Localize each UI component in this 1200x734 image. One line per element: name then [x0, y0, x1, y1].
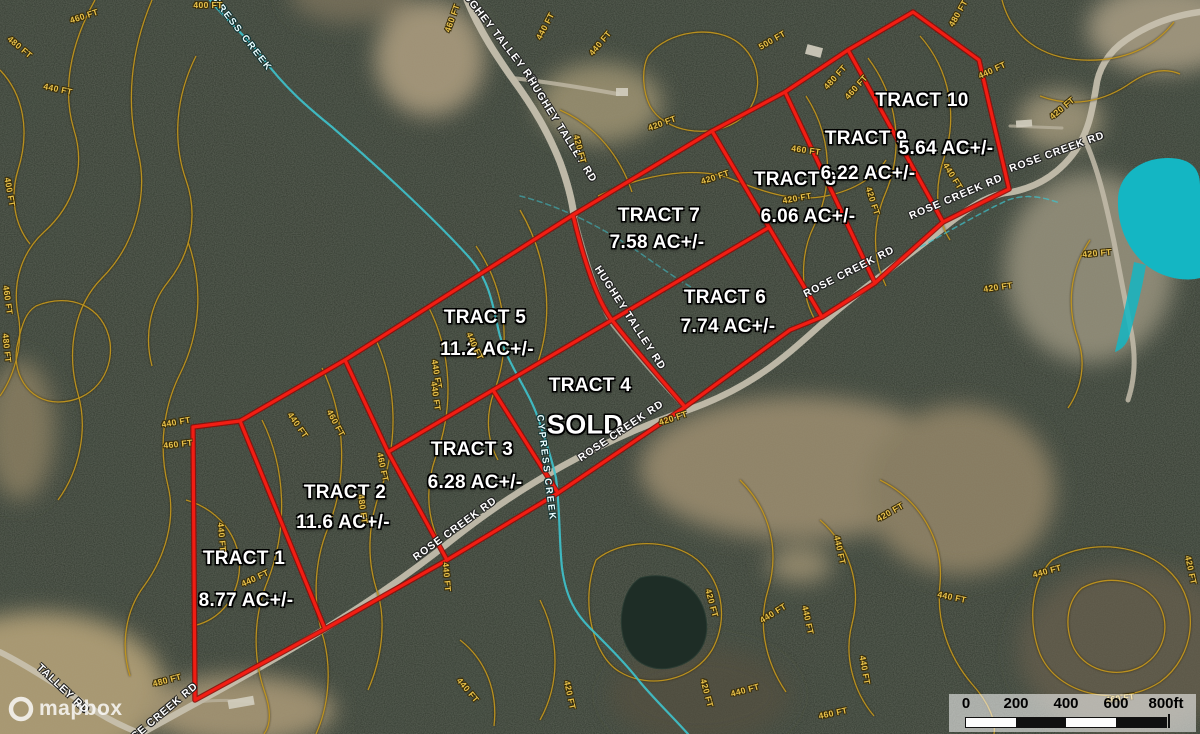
tract-1-acreage: 8.77 AC+/- — [199, 590, 294, 612]
tract-10-acreage: 5.64 AC+/- — [899, 138, 994, 160]
tract-8-acreage: 6.06 AC+/- — [761, 206, 856, 228]
tract-7-label: TRACT 7 — [618, 205, 700, 227]
tract-5-label: TRACT 5 — [444, 307, 526, 329]
tract-7-acreage: 7.58 AC+/- — [610, 232, 705, 254]
tract-3-acreage: 6.28 AC+/- — [428, 472, 523, 494]
satellite-parcel-map[interactable]: TRACT 1 8.77 AC+/- TRACT 2 11.6 AC+/- TR… — [0, 0, 1200, 734]
mapbox-wordmark: mapbox — [39, 697, 123, 721]
scale-tick-0: 0 — [962, 695, 970, 712]
scale-tick-400: 400 — [1053, 695, 1078, 712]
tract-6-label: TRACT 6 — [684, 287, 766, 309]
contour-label: 400 FT — [193, 0, 222, 10]
mapbox-attribution[interactable]: mapbox — [8, 696, 123, 722]
scale-bar-end-tick — [1168, 714, 1170, 728]
tract-3-label: TRACT 3 — [431, 439, 513, 461]
tract-9-acreage: 6.22 AC+/- — [821, 163, 916, 185]
map-graphics — [0, 0, 1200, 734]
tract-1-label: TRACT 1 — [203, 548, 285, 570]
tract-2-acreage: 11.6 AC+/- — [296, 512, 390, 534]
scale-bar-segments — [965, 717, 1167, 728]
texture-grain-overlay — [0, 0, 1200, 734]
tract-10-label: TRACT 10 — [875, 90, 968, 112]
scale-bar: 0 200 400 600 800ft — [949, 694, 1196, 732]
tract-5-acreage: 11.2 AC+/- — [440, 339, 534, 361]
tract-9-label: TRACT 9 — [825, 128, 907, 150]
scale-bar-labels: 0 200 400 600 800ft — [949, 695, 1196, 713]
tract-6-acreage: 7.74 AC+/- — [681, 316, 776, 338]
scale-tick-200: 200 — [1003, 695, 1028, 712]
scale-tick-600: 600 — [1103, 695, 1128, 712]
scale-tick-800ft: 800ft — [1148, 695, 1183, 712]
tract-2-label: TRACT 2 — [304, 482, 386, 504]
mapbox-logo-icon — [8, 696, 34, 722]
tract-4-label: TRACT 4 — [549, 375, 631, 397]
